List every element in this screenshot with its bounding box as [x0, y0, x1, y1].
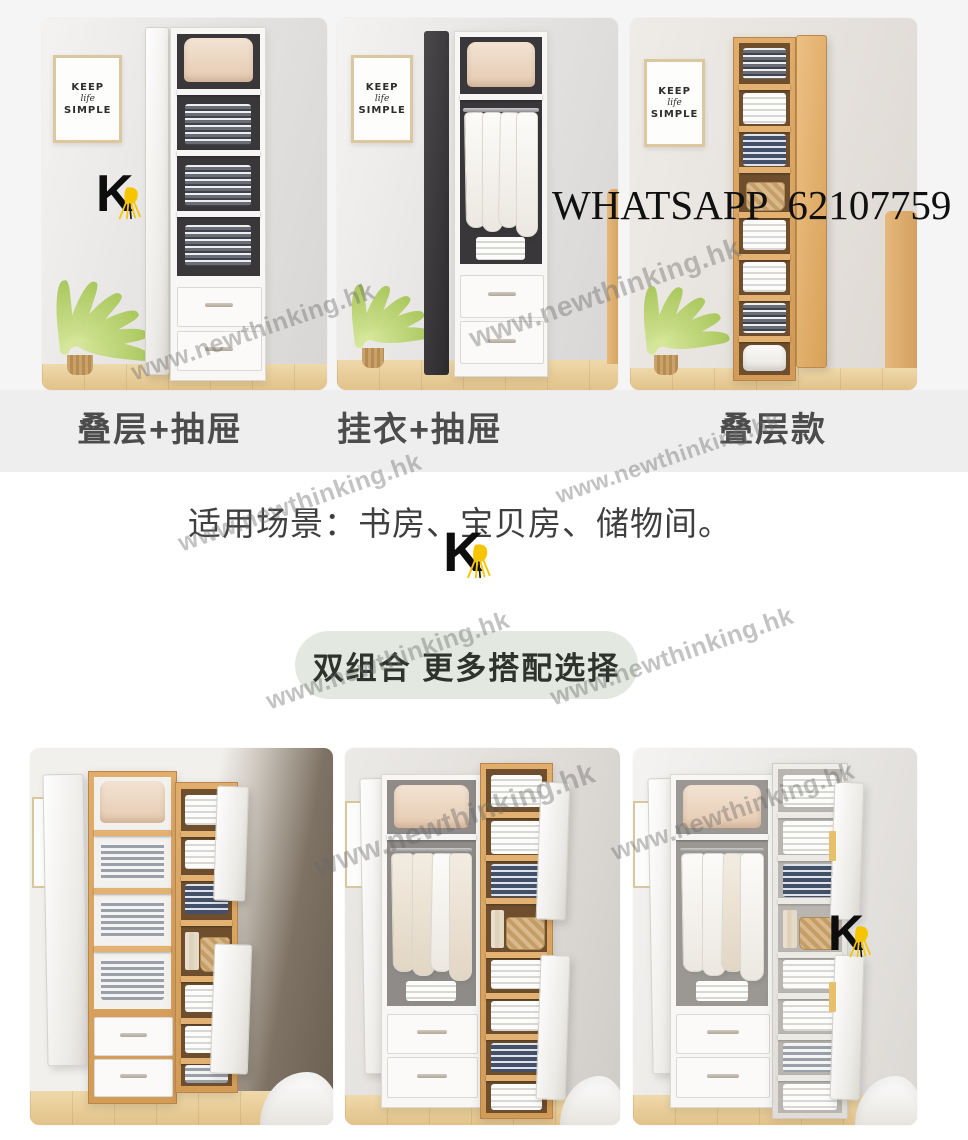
chair-icon: [463, 543, 493, 579]
clothes-stack: [743, 303, 787, 333]
chair-icon: [846, 925, 873, 958]
cabinet-interior: [94, 777, 171, 1009]
brand-logo: K: [96, 173, 131, 216]
wall-poster: KEEP life SIMPLE: [53, 55, 122, 143]
folded-blanket: [184, 38, 254, 82]
clothes-stack: [476, 237, 525, 260]
wall-poster: KEEP life SIMPLE: [351, 55, 413, 143]
hanging-rod: [680, 848, 765, 852]
plant-pot: [67, 355, 93, 375]
clothes-stack: [743, 262, 787, 292]
product-detail-image: KEEP life SIMPLE KEE: [0, 0, 968, 1140]
photo-double-wardrobe-wood: [30, 748, 333, 1125]
plant-pot: [654, 355, 678, 375]
plant-pot: [362, 348, 384, 367]
clothes-stack: [101, 958, 164, 1000]
bed: [560, 1076, 621, 1125]
clothes-stack: [101, 842, 164, 881]
poster-text: life: [81, 94, 95, 104]
clothes-stack: [185, 104, 251, 145]
clothes-stack: [185, 165, 251, 206]
open-door: [145, 27, 170, 375]
clothes-stack: [696, 981, 748, 1001]
clothes-stack: [406, 981, 456, 1001]
photo-label-2: 挂衣+抽屉: [337, 402, 503, 451]
poster-text: SIMPLE: [64, 105, 111, 116]
open-door-small: [535, 955, 570, 1101]
cabinet-interior: [177, 34, 260, 277]
clothes-stack: [743, 134, 787, 166]
storage-basket: [506, 917, 545, 950]
open-door-small: [829, 955, 864, 1101]
drawer: [676, 1057, 770, 1097]
drawer: [94, 1017, 173, 1055]
books: [783, 910, 797, 948]
clothes-stack: [743, 93, 787, 125]
hanging-garment: [740, 853, 764, 981]
clothes-stack: [491, 864, 543, 897]
clothes-stack: [491, 1084, 543, 1110]
hanging-shirt: [516, 112, 538, 237]
bed: [260, 1072, 333, 1125]
clothes-stack: [783, 864, 836, 897]
photo-label-1: 叠层+抽屉: [77, 402, 243, 451]
hanging-garment: [449, 853, 472, 981]
drawer: [387, 1057, 478, 1097]
clothes-stack: [783, 1043, 836, 1072]
door-edge-accent: [829, 982, 836, 1012]
books: [185, 932, 198, 971]
folded-blanket: [467, 42, 536, 87]
cabinet-interior: [460, 37, 542, 264]
brand-logo: K: [828, 913, 861, 954]
folded-blanket: [743, 345, 787, 372]
chair-icon: [115, 186, 143, 220]
drawer: [387, 1014, 478, 1054]
wall-poster: KEEP life SIMPLE: [644, 59, 705, 147]
clothes-stack: [491, 1043, 543, 1072]
clothes-stack: [491, 1001, 543, 1030]
clothes-stack: [491, 960, 543, 989]
bed: [855, 1076, 917, 1125]
clothes-stack: [101, 900, 164, 939]
folded-blanket: [100, 781, 165, 823]
open-door-small: [213, 785, 249, 901]
headboard: [885, 211, 917, 367]
clothes-stack: [491, 821, 543, 854]
drawer: [94, 1059, 173, 1097]
open-door: [43, 774, 89, 1067]
clothes-stack: [185, 225, 251, 266]
books: [491, 910, 505, 948]
brand-logo: K: [443, 529, 480, 575]
door-edge-accent: [829, 831, 836, 861]
clothes-stack: [743, 48, 787, 80]
poster-text: KEEP: [71, 82, 104, 93]
open-door-small: [210, 943, 253, 1074]
open-door-dark: [424, 31, 449, 375]
whatsapp-contact-text: WHATSAPP 62107759: [552, 181, 951, 229]
drawer: [676, 1014, 770, 1054]
wardrobe-left-column: [88, 771, 178, 1105]
hanging-rod: [463, 108, 538, 112]
plant: [42, 219, 150, 375]
